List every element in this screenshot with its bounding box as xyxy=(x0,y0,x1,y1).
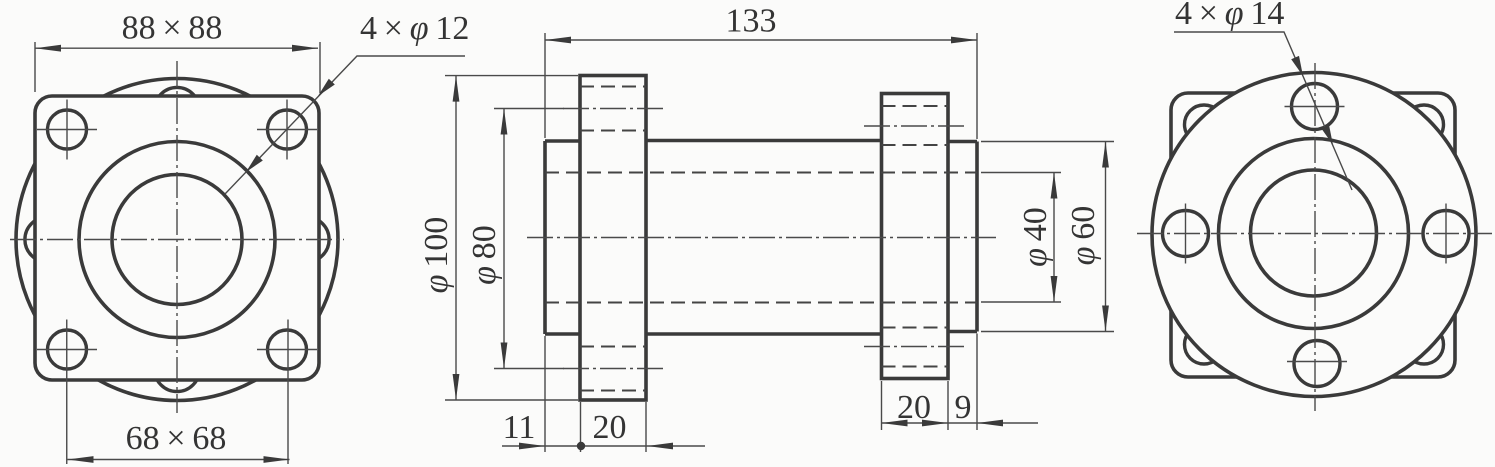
svg-text:φ 80: φ 80 xyxy=(466,225,503,285)
svg-text:φ 40: φ 40 xyxy=(1017,207,1054,267)
svg-text:133: 133 xyxy=(726,3,777,40)
svg-text:9: 9 xyxy=(955,389,972,426)
svg-text:11: 11 xyxy=(503,409,536,446)
svg-text:4 × φ 12: 4 × φ 12 xyxy=(360,10,469,47)
svg-text:20: 20 xyxy=(897,389,931,426)
svg-text:88 × 88: 88 × 88 xyxy=(122,10,223,47)
svg-text:4 × φ 14: 4 × φ 14 xyxy=(1175,0,1284,32)
svg-text:φ 100: φ 100 xyxy=(418,217,455,294)
svg-text:20: 20 xyxy=(593,409,627,446)
svg-text:φ 60: φ 60 xyxy=(1065,206,1102,266)
svg-text:68 × 68: 68 × 68 xyxy=(126,420,227,457)
